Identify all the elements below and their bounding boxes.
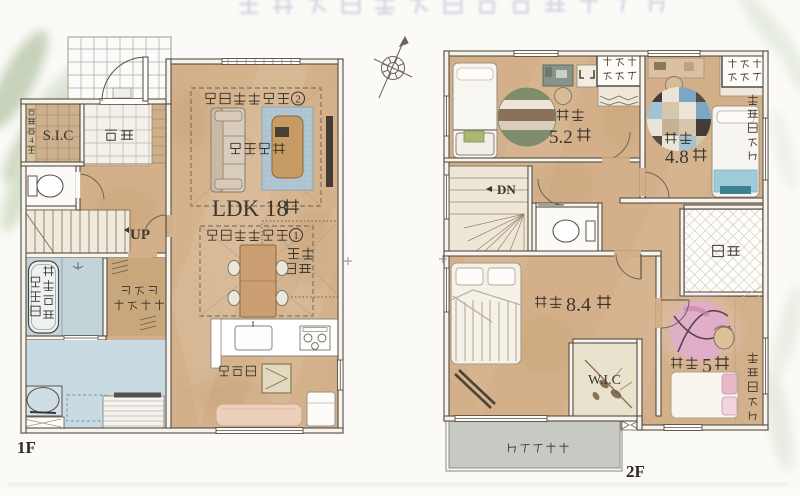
svg-text:S.I.C: S.I.C [43,128,74,144]
svg-text:1F: 1F [17,438,36,457]
svg-text:W.I.C: W.I.C [588,373,621,388]
svg-text:2: 2 [295,94,301,106]
svg-text:5.2: 5.2 [549,127,573,148]
svg-text:LDK 18: LDK 18 [212,196,288,221]
svg-text:2F: 2F [626,462,645,481]
svg-text:DN: DN [497,182,516,197]
svg-text:1: 1 [293,230,299,242]
svg-text:4.8: 4.8 [665,147,689,168]
svg-text:4: 4 [30,136,34,145]
svg-text:UP: UP [130,227,150,243]
svg-text:8.4: 8.4 [566,294,591,316]
